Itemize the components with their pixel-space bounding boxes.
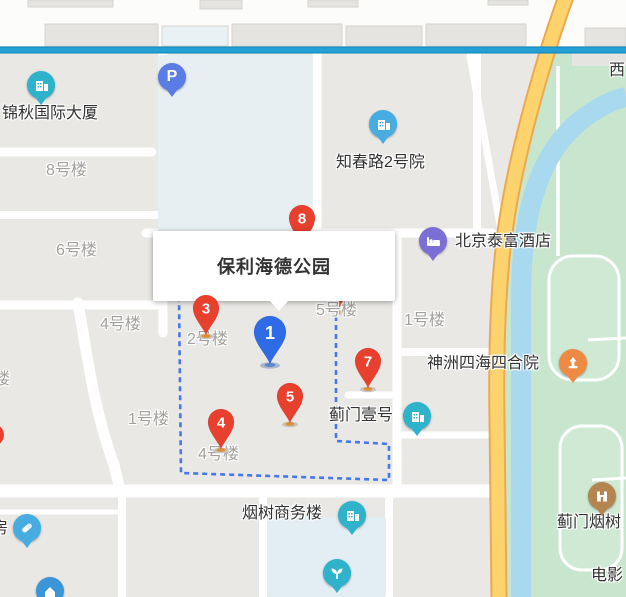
highlight-block-south	[267, 517, 386, 597]
pin-number: 4	[217, 415, 226, 432]
road-name-partial: 西	[609, 62, 625, 80]
building-label: 4号楼	[100, 316, 141, 334]
building-icon	[344, 507, 360, 523]
map-infobox[interactable]: 保利海德公园	[153, 231, 395, 301]
poi-marker-house[interactable]	[36, 577, 64, 597]
building-label: 6号楼	[56, 242, 97, 260]
infobox-title: 保利海德公园	[217, 253, 331, 279]
poi-marker-zhichun[interactable]	[369, 110, 397, 138]
poi-label-taifu-hotel: 北京泰富酒店	[455, 233, 551, 251]
poi-label-jimen-no1: 蓟门壹号	[329, 407, 393, 425]
poi-marker-shenzhou[interactable]	[559, 349, 587, 377]
poi-label-jimen-yanshu: 蓟门烟树	[557, 514, 621, 532]
poi-label-jinqiu: 锦秋国际大厦	[2, 105, 98, 123]
poi-label-cinema-partial: 电影	[591, 567, 623, 585]
sprout-icon	[329, 565, 345, 581]
pin-number: 8	[298, 211, 306, 228]
poi-label-shenzhou: 神洲四海四合院	[427, 355, 539, 373]
pin-number: 3	[202, 301, 210, 318]
map-viewport[interactable]: 8号楼 6号楼 4号楼 2号楼 5号楼 1号楼 1号楼 4号楼 楼 锦秋国际大厦…	[0, 0, 626, 597]
poi-marker-yanshu[interactable]	[338, 501, 366, 529]
pin-number: 1	[265, 323, 275, 343]
parking-icon: P	[167, 68, 178, 86]
building-icon	[33, 77, 49, 93]
building-label: 8号楼	[46, 162, 87, 180]
building-label-partial: 楼	[0, 371, 10, 389]
bed-icon	[425, 233, 441, 249]
building-icon	[375, 116, 391, 132]
poi-label-partial: 房	[0, 520, 8, 538]
building-label: 1号楼	[128, 411, 169, 429]
poi-marker-jimen-yanshu[interactable]	[588, 482, 616, 510]
poi-label-yanshu: 烟树商务楼	[242, 505, 322, 523]
poi-marker-pharmacy[interactable]	[13, 514, 41, 542]
map-pin-7[interactable]: 7	[354, 347, 382, 393]
map-pin-5[interactable]: 5	[276, 382, 304, 428]
house-icon	[42, 583, 58, 597]
castle-icon	[594, 488, 610, 504]
poi-label-zhichun: 知春路2号院	[336, 154, 425, 172]
poi-marker-jinqiu[interactable]	[27, 71, 55, 99]
building-icon	[409, 408, 425, 424]
building-label: 5号楼	[316, 302, 357, 320]
monument-icon	[565, 355, 581, 371]
pin-number: 7	[364, 354, 372, 371]
poi-marker-tree[interactable]	[323, 559, 351, 587]
poi-marker-parking[interactable]: P	[158, 63, 186, 91]
map-pin-4[interactable]: 4	[207, 408, 235, 454]
pin-number: 5	[286, 389, 294, 406]
map-pin-1[interactable]: 1	[252, 315, 288, 369]
pill-icon	[19, 520, 35, 536]
poi-marker-jimen-no1[interactable]	[403, 402, 431, 430]
building-label: 1号楼	[404, 312, 445, 330]
poi-marker-hotel[interactable]	[419, 227, 447, 255]
map-pin-3[interactable]: 3	[192, 294, 220, 340]
